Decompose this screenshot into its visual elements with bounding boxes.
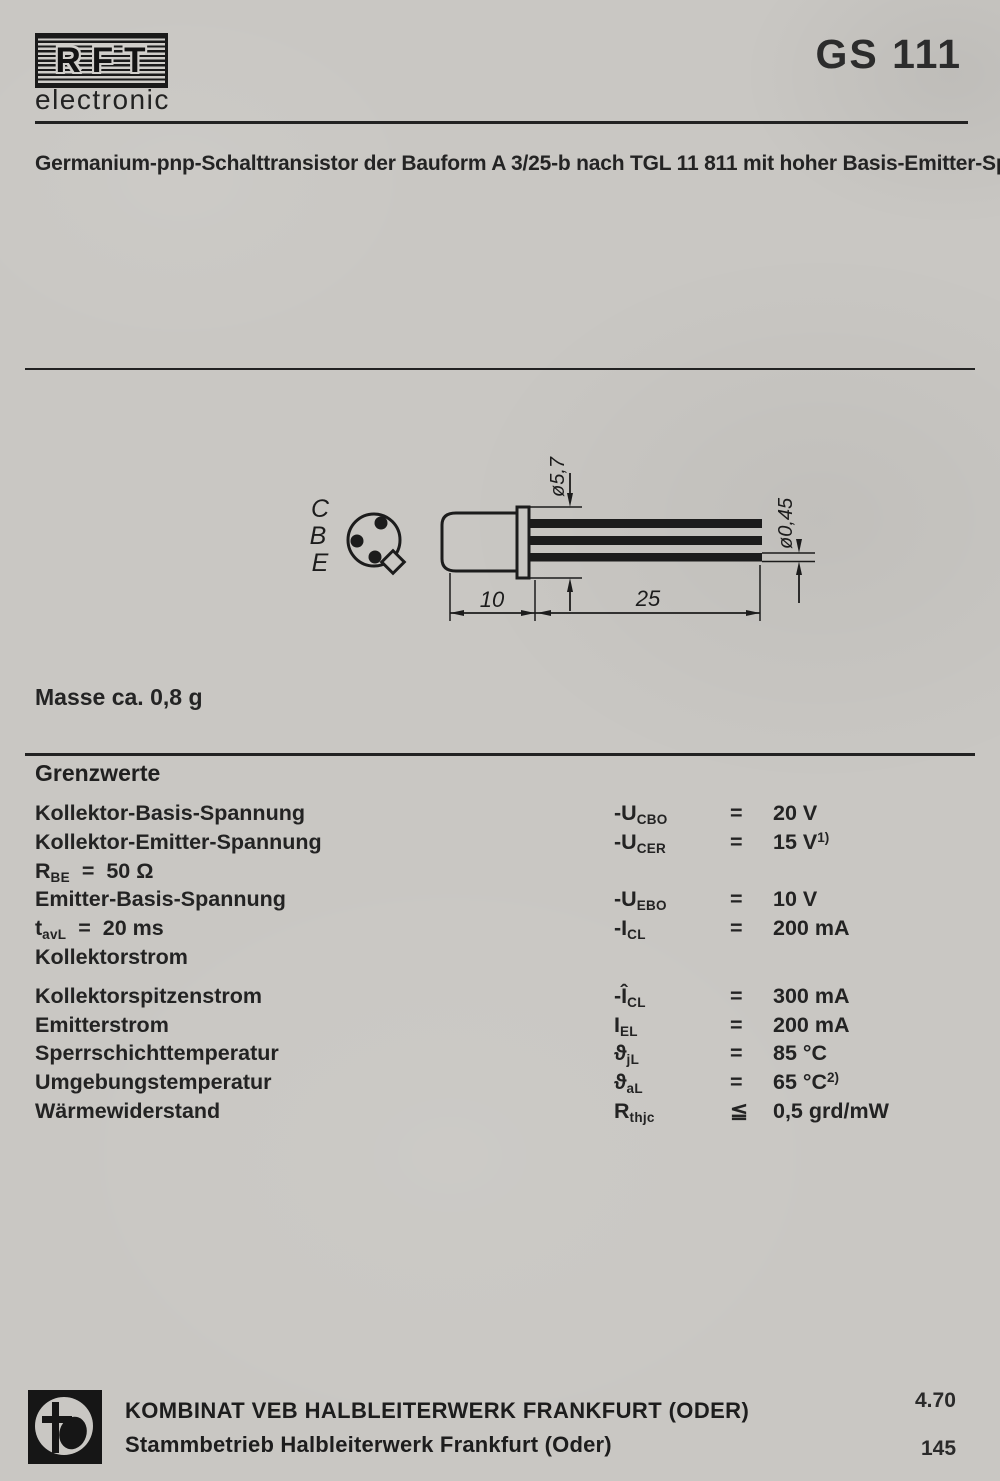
dim-flange-diameter: ø5,7 [547, 456, 569, 497]
limit-relation: = [730, 801, 743, 826]
page-footer: KOMBINAT VEB HALBLEITERWERK FRANKFURT (O… [0, 0, 1000, 1481]
description-paragraph: Germanium-pnp-Schalttransistor der Baufo… [35, 147, 973, 180]
limit-label: Emitter-Basis-Spannung [35, 887, 286, 913]
limit-symbol: -UCER [614, 830, 666, 856]
rft-logo-text: RFT [46, 41, 156, 81]
pin-dot-c [375, 517, 388, 530]
limit-symbol: ϑjL [614, 1041, 639, 1067]
limit-label: Kollektorstrom [35, 945, 188, 971]
transistor-outline-drawing: C B E ø5,7 ø0,45 [280, 425, 825, 660]
limit-relation: = [730, 887, 743, 912]
section-divider-limits [25, 753, 975, 756]
limit-symbol: -ÎCL [614, 984, 646, 1010]
pinout-key-tab [382, 551, 405, 574]
limit-relation: = [730, 1013, 743, 1038]
part-number-title: GS 111 [815, 31, 962, 78]
limit-row: Kollektorspitzenstrom-ÎCL=300 mA [35, 984, 965, 1013]
limit-row: EmitterstromIEL=200 mA [35, 1013, 965, 1042]
limit-symbol: -ICL [614, 916, 646, 942]
limit-label: RBE = 50 Ω [35, 859, 153, 885]
limit-label: Kollektor-Emitter-Spannung [35, 830, 322, 856]
limit-relation: = [730, 1070, 743, 1095]
dim-lead-length: 25 [635, 586, 661, 611]
company-name-line2: Stammbetrieb Halbleiterwerk Frankfurt (O… [125, 1432, 612, 1458]
lead-collector [529, 519, 762, 528]
transistor-body [442, 513, 517, 571]
limit-relation: = [730, 984, 743, 1009]
company-name-line1: KOMBINAT VEB HALBLEITERWERK FRANKFURT (O… [125, 1398, 749, 1424]
lead-base [529, 536, 762, 545]
limit-value: 20 V [773, 801, 817, 826]
limit-relation: ≦ [730, 1099, 748, 1124]
section-divider-top [25, 368, 975, 370]
limit-label: tavL = 20 ms [35, 916, 164, 942]
limit-value: 200 mA [773, 916, 850, 941]
limit-row: Emitter-Basis-Spannung-UEBO=10 V [35, 887, 965, 916]
limit-row: RBE = 50 Ω [35, 859, 965, 888]
lead-emitter [529, 553, 762, 562]
limit-label: Wärmewiderstand [35, 1099, 220, 1125]
limit-value: 300 mA [773, 984, 850, 1009]
limit-label: Umgebungstemperatur [35, 1070, 272, 1096]
transistor-flange [517, 507, 529, 578]
limit-relation: = [730, 1041, 743, 1066]
rft-logo: RFT [35, 33, 168, 88]
mass-note: Masse ca. 0,8 g [35, 684, 203, 711]
limit-symbol: IEL [614, 1013, 638, 1039]
limit-label: Kollektor-Basis-Spannung [35, 801, 305, 827]
limit-row: SperrschichttemperaturϑjL=85 °C [35, 1041, 965, 1070]
limits-section-title: Grenzwerte [35, 760, 160, 787]
limit-label: Kollektorspitzenstrom [35, 984, 262, 1010]
pin-label-b: B [310, 522, 327, 550]
limit-row: UmgebungstemperaturϑaL=65 °C2) [35, 1070, 965, 1099]
limit-value: 65 °C2) [773, 1070, 839, 1095]
limit-value: 200 mA [773, 1013, 850, 1038]
dim-body-length: 10 [480, 587, 505, 612]
limit-relation: = [730, 830, 743, 855]
limit-row: Kollektor-Emitter-Spannung-UCER=15 V1) [35, 830, 965, 859]
limit-symbol: -UEBO [614, 887, 667, 913]
limit-value: 10 V [773, 887, 817, 912]
limit-row: Kollektor-Basis-Spannung-UCBO=20 V [35, 801, 965, 830]
pin-dot-e [369, 551, 382, 564]
limit-value: 15 V1) [773, 830, 829, 855]
limit-symbol: ϑaL [614, 1070, 643, 1096]
pin-label-c: C [311, 495, 330, 523]
limit-symbol: Rthjc [614, 1099, 655, 1125]
limit-row: Kollektorstrom [35, 945, 965, 974]
limit-value: 0,5 grd/mW [773, 1099, 889, 1124]
limits-table: Kollektor-Basis-Spannung-UCBO=20 V Kolle… [35, 801, 965, 1128]
pin-dot-b [351, 535, 364, 548]
hfo-manufacturer-logo [28, 1390, 102, 1464]
datasheet-page: RFT electronic GS 111 Germanium-pnp-Scha… [0, 0, 1000, 1481]
limit-row: WärmewiderstandRthjc≦0,5 grd/mW [35, 1099, 965, 1128]
limit-label: Sperrschichttemperatur [35, 1041, 279, 1067]
limit-row: tavL = 20 ms-ICL=200 mA [35, 916, 965, 945]
limit-symbol: -UCBO [614, 801, 668, 827]
limit-relation: = [730, 916, 743, 941]
page-number: 145 [921, 1437, 956, 1461]
header-divider [35, 121, 968, 124]
pin-label-e: E [312, 549, 329, 577]
date-code: 4.70 [915, 1389, 956, 1413]
limit-value: 85 °C [773, 1041, 827, 1066]
limit-label: Emitterstrom [35, 1013, 169, 1039]
brand-subtitle: electronic [35, 84, 170, 116]
dim-lead-diameter: ø0,45 [775, 497, 797, 549]
